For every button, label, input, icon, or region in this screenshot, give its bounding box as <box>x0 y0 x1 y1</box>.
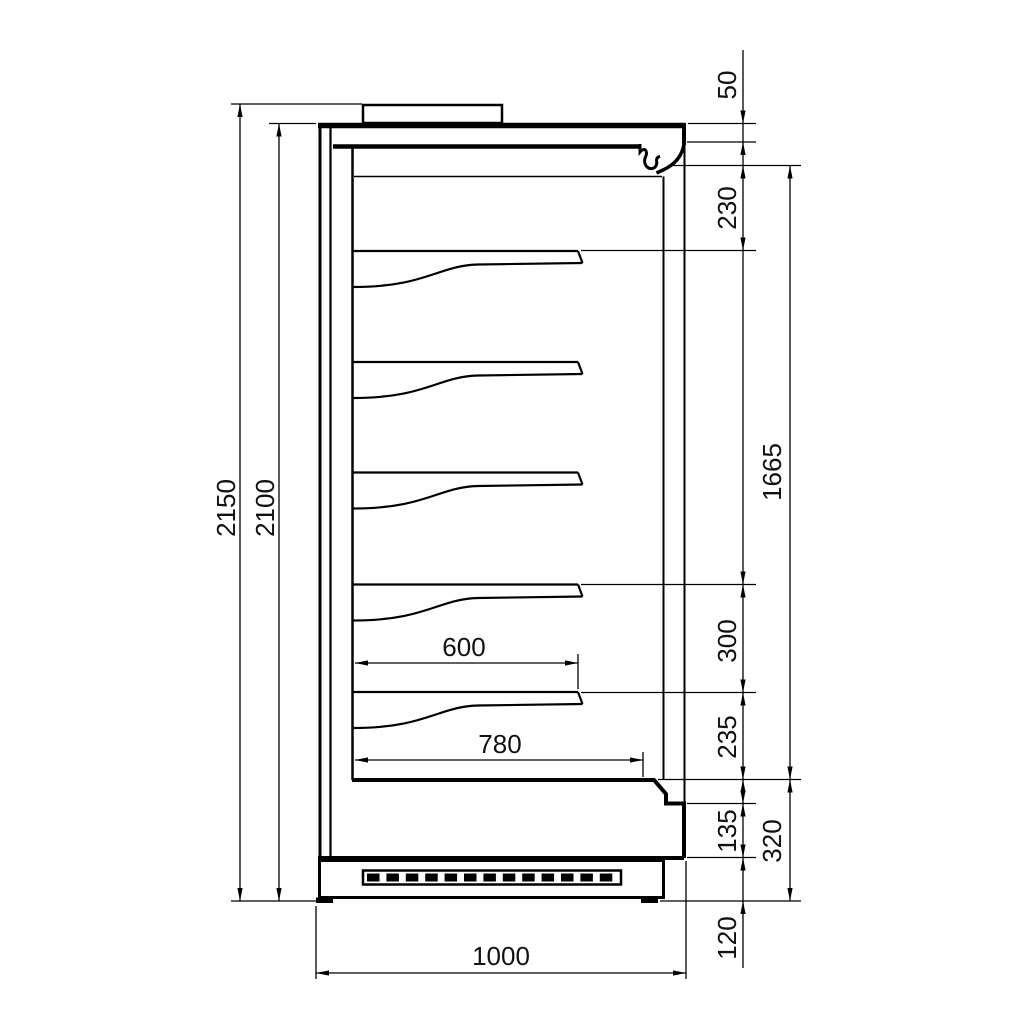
dim-label-lower-front: 135 <box>712 809 742 852</box>
dim-label-overall-depth: 1000 <box>472 941 530 971</box>
top-box <box>363 105 502 123</box>
canopy-drip-detail <box>640 144 660 169</box>
dim-label-overall-height: 2150 <box>211 479 241 537</box>
bottom-deck-and-step <box>352 780 684 858</box>
dim-label-top-gap: 50 <box>712 71 742 100</box>
shelf-2 <box>353 362 583 398</box>
dim-label-shelf-pitch: 300 <box>712 619 742 662</box>
dimension-labels: 2150 2100 50 230 1665 300 235 135 320 12… <box>211 71 787 971</box>
foot-right <box>641 898 658 904</box>
shelf-5 <box>353 692 583 728</box>
dim-label-shelf-depth: 600 <box>442 632 485 662</box>
dim-label-body-height: 2100 <box>250 479 280 537</box>
dim-label-display-opening: 1665 <box>757 443 787 501</box>
dim-label-canopy-zone: 230 <box>712 186 742 229</box>
drawing-page: 2150 2100 50 230 1665 300 235 135 320 12… <box>0 0 1024 1024</box>
dim-label-bottom-shelf-gap: 235 <box>712 715 742 758</box>
technical-drawing: 2150 2100 50 230 1665 300 235 135 320 12… <box>0 0 1024 1024</box>
shelf-3 <box>353 473 583 509</box>
canopy-nose-outer <box>657 144 685 173</box>
dimension-lines <box>240 50 790 973</box>
cabinet-body <box>318 105 685 898</box>
shelf-4 <box>353 585 583 621</box>
foot-left <box>316 898 333 904</box>
base-grille <box>363 871 621 885</box>
shelf-1 <box>353 251 583 287</box>
dim-label-deck-depth: 780 <box>478 729 521 759</box>
dim-label-base-zone: 320 <box>757 819 787 862</box>
dim-label-plinth: 120 <box>712 916 742 959</box>
